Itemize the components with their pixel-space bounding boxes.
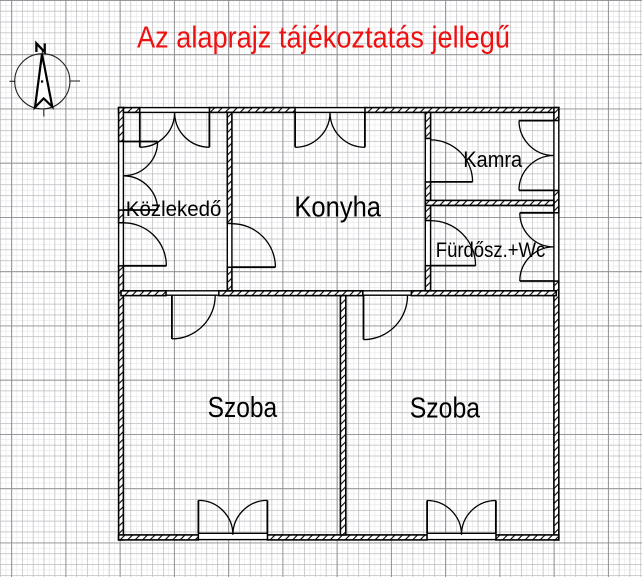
svg-text:Kamra: Kamra <box>463 147 523 172</box>
svg-text:Közlekedő: Közlekedő <box>126 198 222 221</box>
svg-text:Az alaprajz tájékoztatás jelle: Az alaprajz tájékoztatás jellegű <box>137 19 510 54</box>
svg-text:Konyha: Konyha <box>294 192 381 224</box>
svg-text:Szoba: Szoba <box>208 392 278 424</box>
svg-text:Fürdősz.+Wc: Fürdősz.+Wc <box>436 239 545 262</box>
svg-text:Szoba: Szoba <box>410 392 481 424</box>
